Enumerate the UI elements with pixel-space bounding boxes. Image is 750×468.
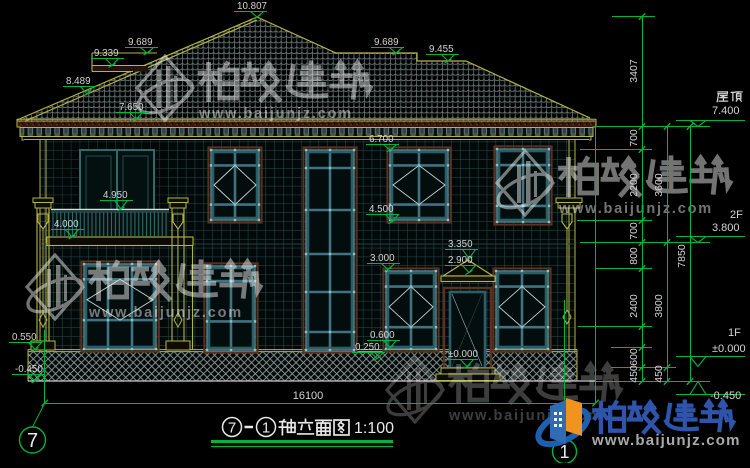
svg-text:8.489: 8.489 [66, 76, 91, 87]
svg-text:0.550: 0.550 [12, 332, 37, 343]
svg-text:0.600: 0.600 [370, 330, 395, 341]
svg-text:2F: 2F [730, 209, 743, 221]
svg-text:800: 800 [628, 247, 640, 265]
svg-text:4.500: 4.500 [369, 204, 394, 215]
svg-text:6.700: 6.700 [369, 134, 394, 145]
svg-text:600: 600 [628, 348, 640, 366]
svg-text:9.455: 9.455 [429, 44, 454, 55]
svg-text:700: 700 [628, 222, 640, 240]
svg-text:9.689: 9.689 [128, 37, 153, 48]
svg-text:3.000: 3.000 [370, 253, 395, 264]
svg-text:7: 7 [27, 430, 38, 452]
svg-text:450: 450 [653, 365, 665, 383]
svg-text:1:100: 1:100 [354, 420, 394, 437]
svg-text:700: 700 [628, 129, 640, 147]
svg-text:4.950: 4.950 [103, 190, 128, 201]
svg-text:-0.450: -0.450 [15, 364, 43, 375]
svg-text:3.800: 3.800 [712, 222, 740, 234]
svg-text:2.900: 2.900 [448, 255, 473, 266]
svg-text:2200: 2200 [628, 173, 640, 197]
svg-text:1F: 1F [728, 327, 741, 339]
svg-text:www.baijunjz.com: www.baijunjz.com [591, 432, 741, 449]
svg-text:7.400: 7.400 [712, 105, 740, 117]
svg-text:4.000: 4.000 [54, 219, 79, 230]
svg-text:7.650: 7.650 [119, 102, 144, 113]
svg-text:±0.000: ±0.000 [712, 343, 746, 355]
svg-text:3800: 3800 [653, 294, 665, 318]
svg-text:±0.000: ±0.000 [448, 349, 478, 360]
svg-text:1: 1 [262, 420, 270, 437]
svg-text:2400: 2400 [628, 294, 640, 318]
svg-text:3.350: 3.350 [448, 239, 473, 250]
svg-text:450: 450 [628, 365, 640, 383]
svg-text:7850: 7850 [676, 244, 688, 268]
svg-text:16100: 16100 [293, 390, 324, 402]
svg-text:9.689: 9.689 [374, 37, 399, 48]
svg-text:3600: 3600 [653, 173, 665, 197]
svg-text:3407: 3407 [628, 59, 640, 83]
svg-text:10.807: 10.807 [237, 1, 267, 12]
svg-text:9.339: 9.339 [94, 48, 119, 59]
svg-text:0.250: 0.250 [355, 342, 380, 353]
svg-text:-0.450: -0.450 [710, 390, 741, 402]
svg-text:7: 7 [228, 420, 236, 437]
